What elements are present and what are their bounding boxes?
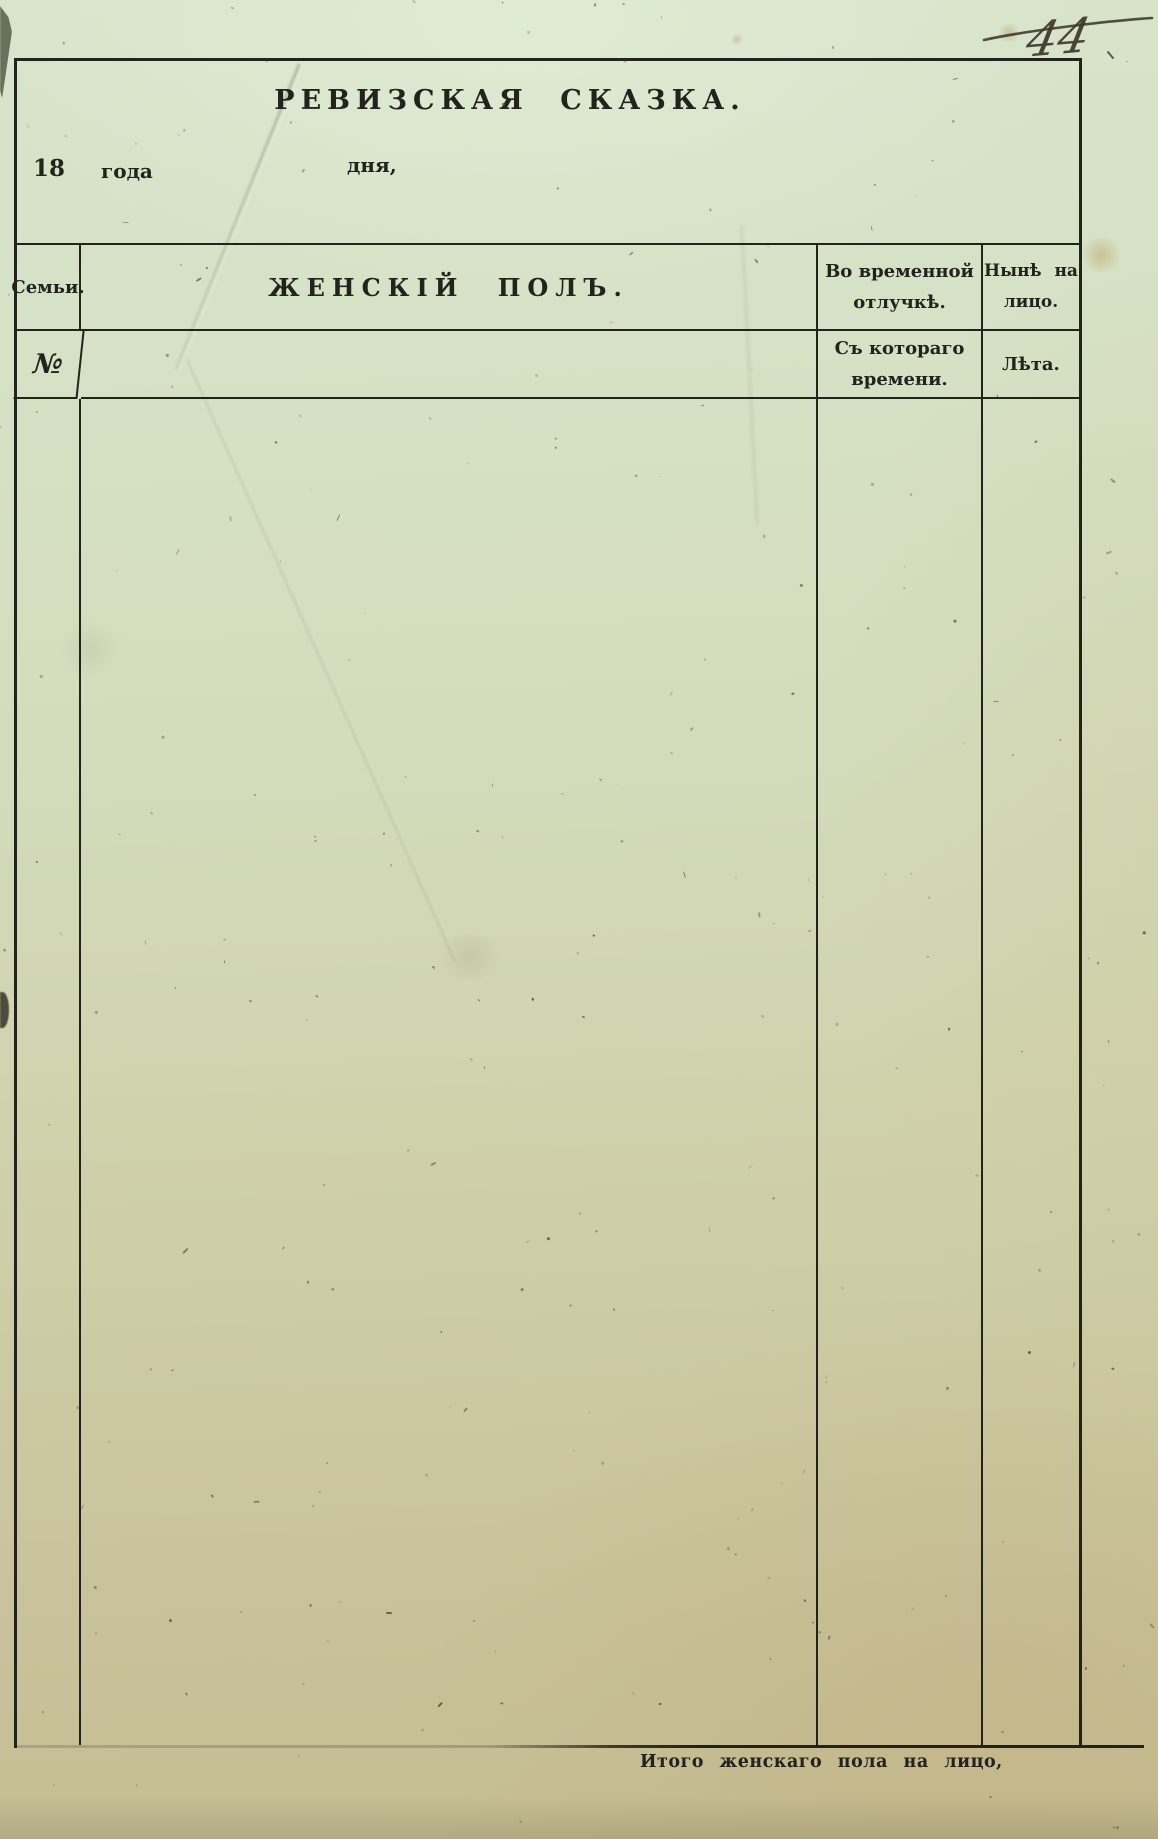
paper-speck [8, 294, 10, 296]
total-female-caption: Итого женскаго пола на лицо, [640, 1752, 1003, 1772]
form-frame: РЕВИЗСКАЯ СКАЗКА. 18 года дня, Семьи. ЖЕ… [14, 58, 1082, 1748]
paper-speck [1082, 596, 1086, 600]
paper-speck [1103, 1085, 1105, 1087]
paper-speck [1112, 1826, 1116, 1830]
paper-speck [1111, 1240, 1115, 1244]
table-body-cell-age [983, 399, 1079, 1745]
paper-speck [297, 1755, 299, 1758]
date-century-prefix: 18 [33, 155, 65, 182]
paper-speck [594, 3, 596, 6]
paper-speck [1097, 961, 1100, 964]
form-title: РЕВИЗСКАЯ СКАЗКА. [0, 85, 1041, 116]
paper-speck [1111, 1368, 1114, 1370]
col-subheader-names-blank [81, 331, 818, 399]
since-header-line2: времени. [835, 364, 965, 396]
paper-speck [1149, 1623, 1155, 1629]
paper-speck [0, 426, 1, 428]
paper-speck [63, 42, 66, 45]
col-header-temporary-absence: Во временной отлучкѣ. [818, 245, 983, 331]
census-table: Семьи. ЖЕНСКІЙ ПОЛЪ. Во временной отлучк… [17, 245, 1079, 1745]
col-header-now-present: Нынѣ на лицо. [983, 245, 1079, 331]
col-header-female-sex: ЖЕНСКІЙ ПОЛЪ. [81, 245, 818, 331]
paper-speck [502, 2, 504, 4]
paper-speck [1107, 1208, 1110, 1211]
absence-header-line2: отлучкѣ. [825, 287, 974, 319]
present-header-line2: лицо. [984, 287, 1078, 318]
paper-speck [230, 6, 233, 9]
table-bottom-rule [14, 1745, 1144, 1748]
paper-speck [412, 0, 416, 3]
paper-speck [2, 948, 5, 951]
paper-speck [989, 1795, 992, 1799]
paper-speck [1108, 1040, 1110, 1043]
table-body-cell-names [81, 399, 818, 1745]
col-subheader-since-when: Съ котораго времени. [818, 331, 983, 399]
col-subheader-number: № [13, 331, 84, 399]
present-header-line1: Нынѣ на [984, 256, 1078, 287]
paper-stain [1078, 238, 1124, 272]
col-header-family: Семьи. [17, 245, 81, 331]
date-year-word: года [101, 159, 153, 183]
paper-speck [660, 16, 661, 19]
absence-header-line1: Во временной [825, 256, 974, 288]
paper-speck [832, 46, 834, 49]
paper-speck [1088, 958, 1090, 960]
since-header-line1: Съ котораго [835, 333, 965, 365]
pen-tick-mark [1108, 52, 1113, 58]
paper-speck [520, 1821, 522, 1823]
paper-speck [1143, 931, 1147, 935]
col-subheader-age: Лѣта. [983, 331, 1079, 399]
table-body-cell-number [17, 399, 81, 1745]
paper-speck [1116, 1826, 1118, 1830]
paper-speck [1106, 551, 1112, 555]
paper-speck [1115, 572, 1118, 576]
form-header-area: РЕВИЗСКАЯ СКАЗКА. 18 года дня, [17, 61, 1079, 245]
paper-speck [1137, 1233, 1141, 1236]
table-body-cell-absence [818, 399, 983, 1745]
paper-speck [53, 1784, 56, 1787]
left-edge-ink-blob [0, 992, 9, 1028]
date-day-word: дня, [347, 153, 397, 177]
paper-speck [622, 2, 625, 5]
paper-speck [135, 1784, 137, 1787]
paper-speck [1123, 1665, 1125, 1667]
scanned-document-page: 44 РЕВИЗСКАЯ СКАЗКА. 18 года дня, Семьи.… [0, 0, 1158, 1839]
paper-stain [730, 34, 744, 45]
paper-speck [527, 31, 530, 34]
paper-speck [1085, 1667, 1088, 1670]
paper-speck [1111, 478, 1117, 483]
